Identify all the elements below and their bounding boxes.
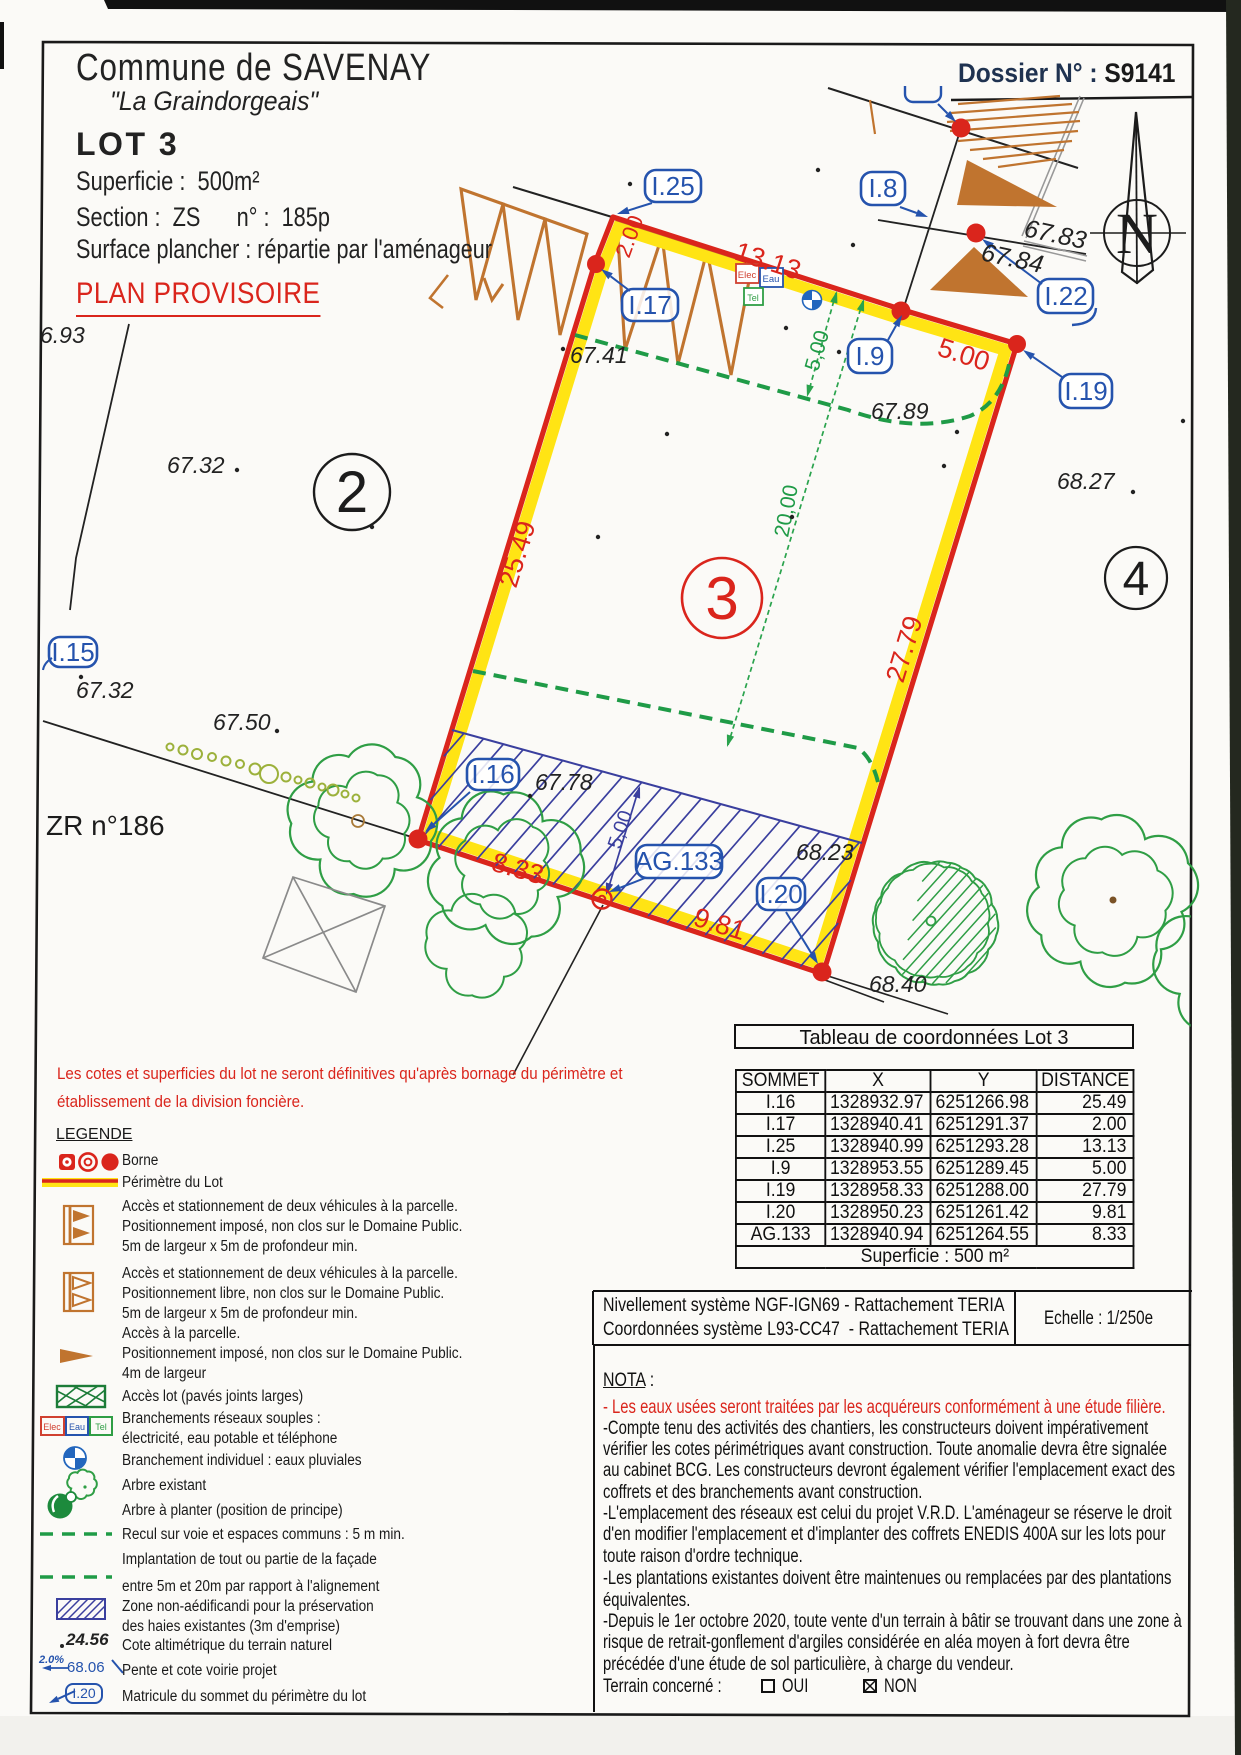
svg-text:68.27: 68.27 — [1057, 468, 1116, 494]
svg-text:Tel: Tel — [95, 1422, 107, 1432]
svg-text:25.49: 25.49 — [493, 517, 541, 590]
svg-text:67.89: 67.89 — [871, 398, 929, 424]
svg-text:3: 3 — [705, 565, 738, 632]
svg-text:I.25: I.25 — [651, 171, 694, 201]
svg-text:2.0%: 2.0% — [38, 1654, 64, 1666]
svg-text:8.33: 8.33 — [488, 847, 547, 890]
svg-text:67.50: 67.50 — [213, 709, 271, 735]
svg-text:4: 4 — [1123, 553, 1150, 606]
svg-text:I.22: I.22 — [1044, 281, 1087, 311]
svg-text:6.93: 6.93 — [40, 322, 85, 348]
svg-text:I.19: I.19 — [1064, 376, 1107, 406]
svg-text:I.16: I.16 — [471, 759, 514, 789]
svg-text:AG.133: AG.133 — [635, 846, 723, 876]
svg-text:Elec: Elec — [43, 1422, 61, 1432]
svg-text:2: 2 — [336, 460, 368, 525]
svg-text:ZR n°186: ZR n°186 — [46, 810, 165, 841]
svg-text:67.32: 67.32 — [76, 677, 134, 703]
svg-text:68.40: 68.40 — [869, 971, 927, 997]
svg-text:68.23: 68.23 — [796, 839, 854, 865]
svg-text:I.20: I.20 — [72, 1685, 96, 1701]
svg-text:20,00: 20,00 — [770, 483, 803, 539]
svg-text:9.81: 9.81 — [690, 902, 749, 946]
svg-text:67.32: 67.32 — [167, 452, 225, 478]
svg-text:Tel: Tel — [747, 293, 759, 303]
svg-text:67.41: 67.41 — [570, 342, 628, 368]
svg-text:67.78: 67.78 — [535, 769, 593, 795]
svg-text:5,00: 5,00 — [801, 328, 834, 374]
svg-text:24.56: 24.56 — [65, 1630, 109, 1649]
svg-text:I.9: I.9 — [856, 341, 885, 371]
svg-text:I.17: I.17 — [628, 290, 671, 320]
svg-text:I.8: I.8 — [869, 173, 898, 203]
svg-text:68.06: 68.06 — [67, 1659, 105, 1676]
svg-text:5,00: 5,00 — [604, 808, 637, 852]
svg-text:Eau: Eau — [69, 1422, 85, 1432]
svg-text:I.20: I.20 — [759, 879, 802, 909]
svg-text:I.15: I.15 — [51, 637, 94, 667]
